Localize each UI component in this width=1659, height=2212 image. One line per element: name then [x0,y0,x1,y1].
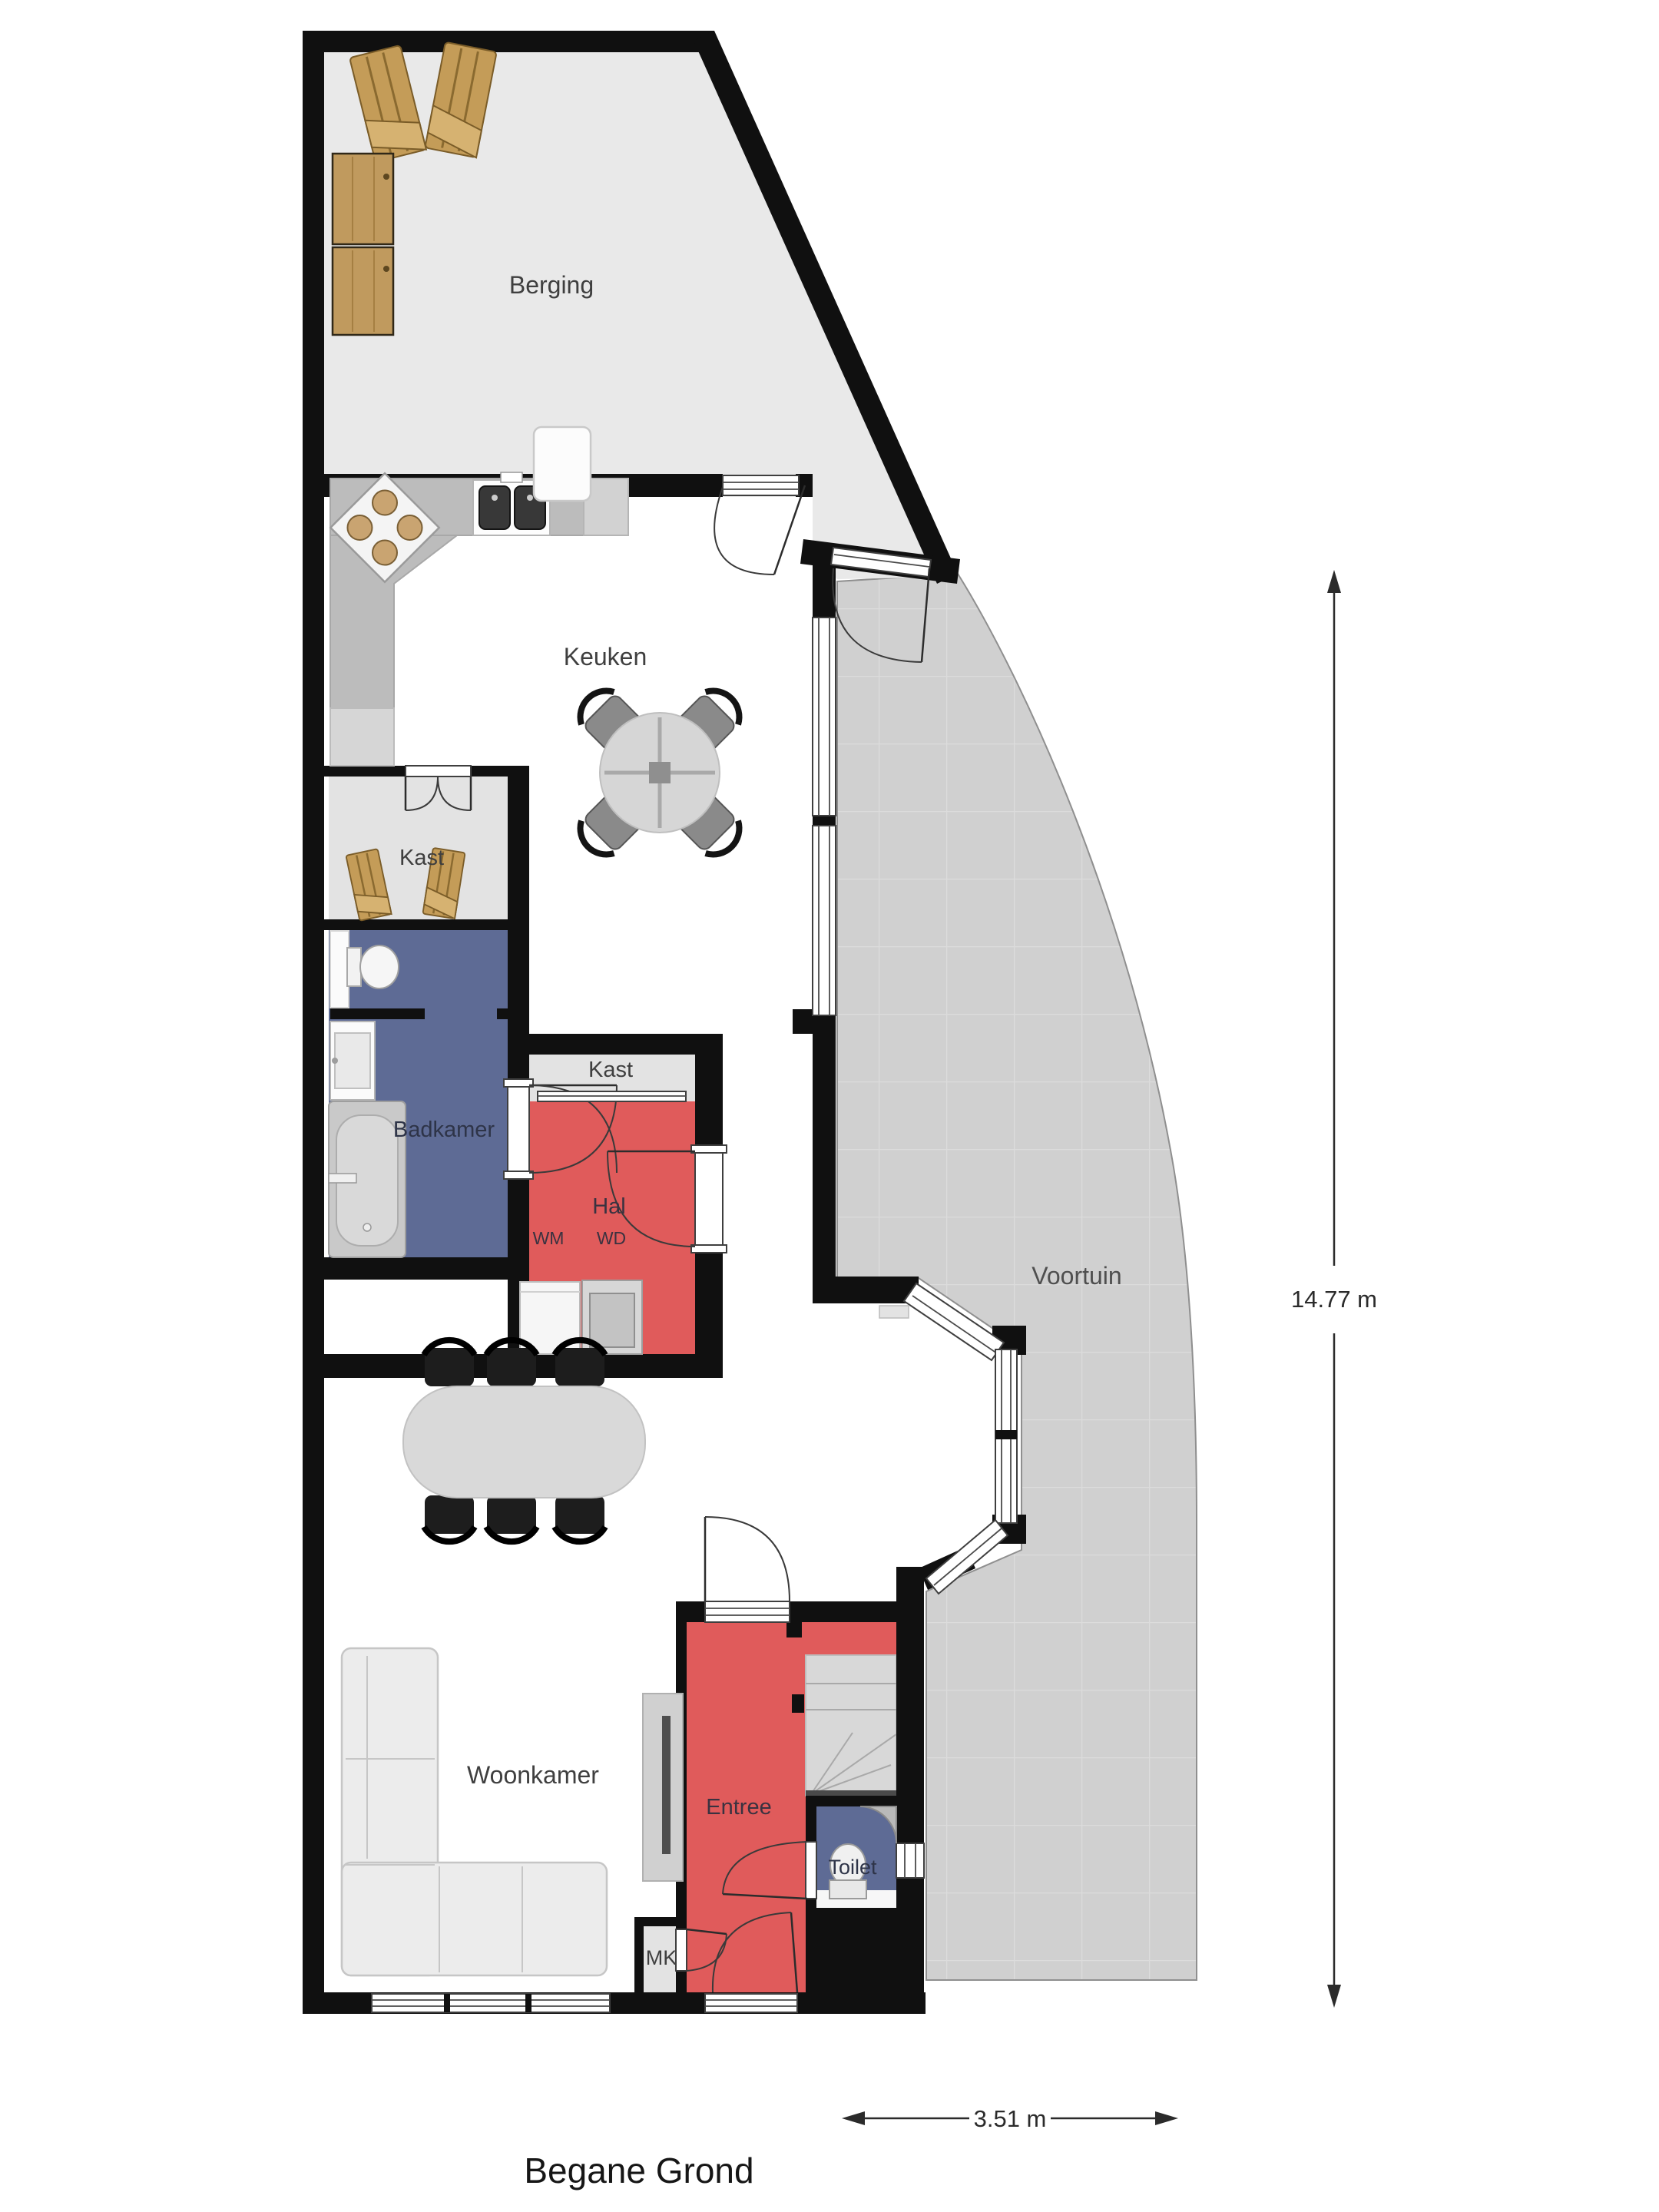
storage-cabinet [333,154,393,244]
label-mk: MK [646,1946,677,1969]
wall-hal-right-upper [695,1055,723,1151]
closet-front-kast-hal [538,1091,686,1101]
wall-stair-stub-b [792,1694,804,1713]
floorplan-svg: Berging Keuken Kast Kast Badkamer Hal WM… [0,0,1659,2212]
wall-keuken-right-b [813,816,836,826]
label-wd: WD [597,1228,626,1248]
label-voortuin: Voortuin [1031,1262,1121,1290]
wall-toilet-bottom [806,1908,924,1992]
window-bay-front [995,1349,1017,1523]
wall-keuken-right-c [813,1015,836,1034]
toilet-tank [829,1880,866,1899]
wall-toilet-left-a [806,1806,816,1842]
staircase [806,1655,896,1798]
wall-kast-badkamer [324,919,518,930]
wc-bowl [360,945,399,988]
kitchen-cabinet-lower [330,708,394,766]
wc-tank [347,948,361,986]
label-toilet: Toilet [828,1856,877,1879]
wall-badkamer-bottom [324,1257,508,1280]
floorplan-page: Berging Keuken Kast Kast Badkamer Hal WM… [0,0,1659,2212]
dining-table [403,1386,645,1498]
radiator [879,1306,909,1318]
label-woonkamer: Woonkamer [467,1761,599,1789]
dimension-height-label: 14.77 m [1291,1286,1377,1313]
window-keuken-lower [813,826,836,1015]
label-keuken: Keuken [564,643,647,671]
label-badkamer: Badkamer [393,1118,495,1142]
wall-keuken-right-d [813,1034,836,1277]
dimension-width-label: 3.51 m [974,2105,1047,2132]
wall-toilet-top [806,1796,896,1806]
storage-cabinet [333,247,393,335]
label-kast-hal: Kast [588,1058,633,1082]
wall-mk-left [634,1917,644,1992]
dimension-horizontal: 3.51 m [842,2105,1178,2132]
wall-kast-top-a [324,766,406,777]
window-keuken-upper [813,618,836,816]
window-toilet [896,1843,924,1878]
label-kast-boven: Kast [399,846,444,870]
wall-step [813,1277,919,1303]
dimension-vertical: 14.77 m [1291,570,1377,2008]
wall-stair-stub-a [786,1622,802,1637]
wall-kast-hal-top [508,1034,723,1055]
tv [662,1716,671,1854]
label-entree: Entree [706,1795,771,1820]
label-berging: Berging [509,271,594,299]
label-wm: WM [533,1228,565,1248]
wall-top [303,31,714,52]
window-woonkamer-south [372,1994,610,2012]
page-title: Begane Grond [524,2151,753,2190]
wall-badkamer-stub-left [330,1008,425,1019]
wall-left [303,31,324,2014]
freezer [534,427,591,501]
label-hal: Hal [592,1194,626,1219]
wall-badkamer-stub-right [497,1008,508,1019]
bath-niche [330,931,349,1008]
